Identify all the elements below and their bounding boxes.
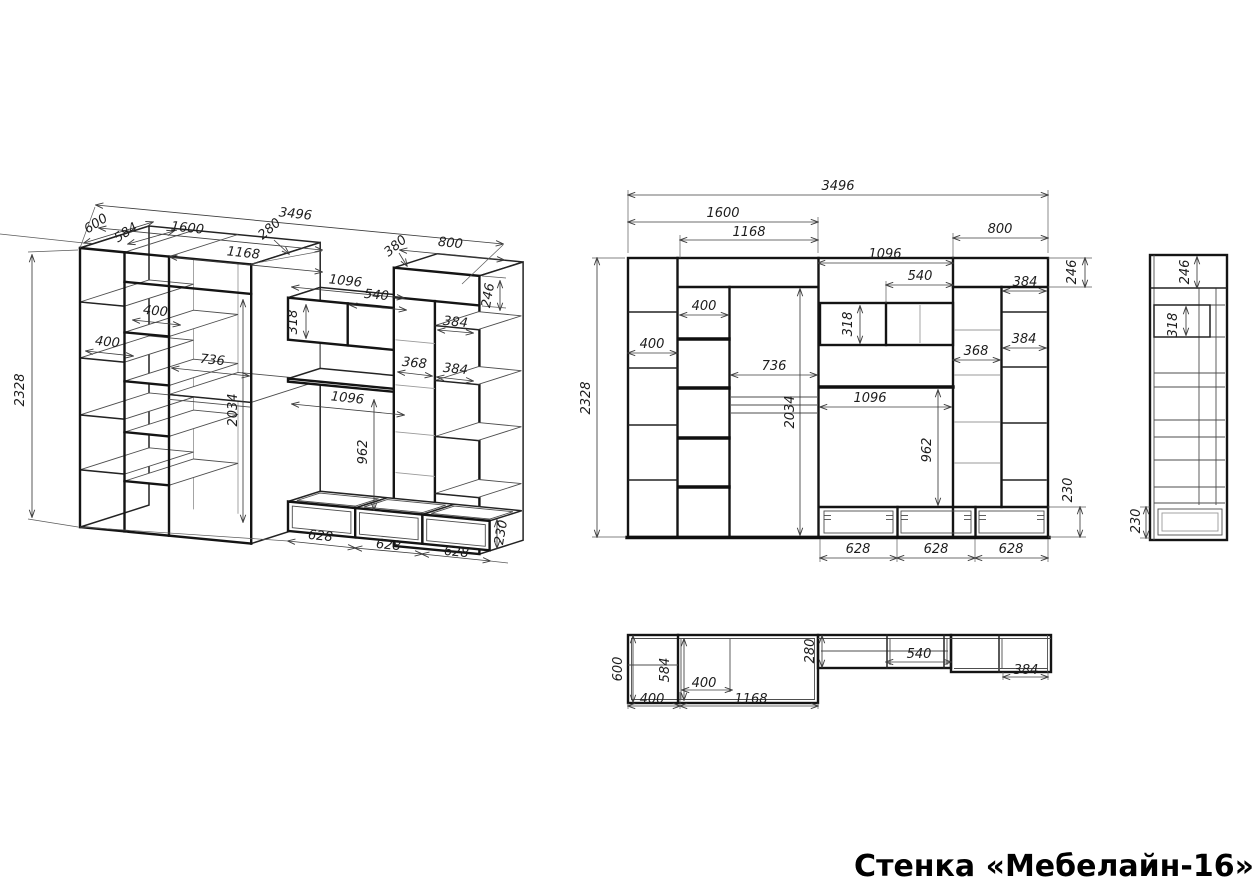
dim-label: 1168: [732, 225, 765, 240]
dim-label: 280: [803, 639, 818, 664]
top-plan-view: [628, 635, 1051, 703]
side-view: [1150, 255, 1227, 540]
dim-label: 628: [999, 542, 1024, 557]
dim-label: 230: [1129, 509, 1144, 534]
dim-label: 384: [442, 314, 468, 332]
dim-label: 400: [640, 692, 665, 707]
dim-label: 400: [692, 676, 717, 691]
drawing-canvas: 6005841600349611682803808001096540318384…: [0, 0, 1260, 892]
dim-label: 368: [401, 355, 427, 373]
dim-label: 3496: [278, 205, 312, 223]
dim-label: 2034: [226, 393, 241, 426]
isometric-view: [80, 226, 523, 554]
dim-label: 384: [1013, 275, 1038, 290]
dim-label: 246: [1178, 260, 1193, 285]
dim-label: 400: [142, 303, 168, 321]
dim-label: 628: [375, 537, 401, 555]
dim-label: 628: [924, 542, 949, 557]
dim-label: 1096: [868, 247, 901, 262]
dim-label: 800: [988, 222, 1013, 237]
front-elevation-view: [627, 258, 1049, 538]
drawing-title: Стенка «Мебелайн-16»: [854, 849, 1254, 884]
dim-label: 2328: [579, 381, 594, 414]
dim-label: 2328: [13, 373, 28, 406]
dim-label: 962: [356, 440, 371, 465]
dim-label: 962: [920, 438, 935, 463]
dim-label: 384: [1014, 663, 1039, 678]
dim-label: 736: [762, 359, 787, 374]
dim-label: 628: [443, 544, 469, 562]
dim-label: 380: [381, 233, 410, 260]
dim-label: 318: [841, 312, 856, 337]
technical-drawing: 6005841600349611682803808001096540318384…: [0, 0, 1260, 892]
dim-label: 3496: [821, 179, 854, 194]
dim-label: 1096: [330, 389, 364, 407]
dim-label: 246: [1065, 260, 1080, 285]
dim-label: 584: [658, 658, 673, 683]
dim-label: 400: [692, 299, 717, 314]
dim-label: 230: [1061, 478, 1076, 503]
dim-label: 540: [908, 269, 933, 284]
dim-label: 600: [611, 657, 626, 682]
dim-label: 368: [964, 344, 989, 359]
dim-label: 400: [640, 337, 665, 352]
dim-label: 2034: [783, 395, 798, 428]
dim-label: 628: [307, 528, 333, 546]
dimension-lines: [0, 190, 1197, 709]
dim-label: 736: [199, 352, 225, 370]
dim-label: 400: [94, 334, 120, 352]
dim-label: 318: [1166, 313, 1181, 338]
dim-label: 540: [907, 647, 932, 662]
dim-label: 1600: [706, 206, 739, 221]
dim-label: 1096: [853, 391, 886, 406]
dim-label: 800: [437, 235, 463, 253]
dim-label: 600: [82, 211, 111, 237]
dim-label: 628: [846, 542, 871, 557]
dim-label: 540: [363, 287, 389, 305]
dim-label: 384: [1012, 332, 1037, 347]
dim-label: 384: [442, 361, 468, 379]
dim-label: 318: [286, 310, 301, 335]
dim-label: 1168: [734, 692, 767, 707]
